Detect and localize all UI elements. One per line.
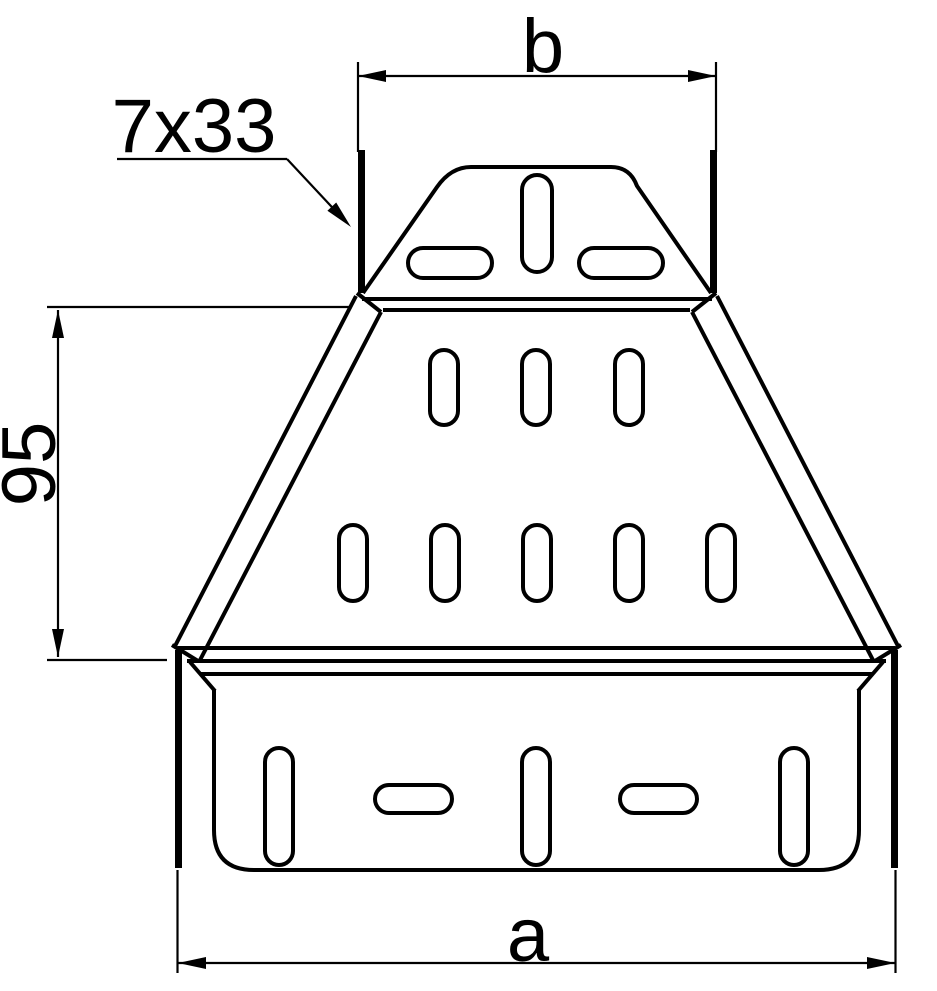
taper-upper-slot-3 — [615, 350, 643, 425]
reducer-drawing: b 95 7x33 — [0, 0, 937, 991]
dimension-a-arrow-left-icon — [178, 957, 206, 969]
taper-lower-slot-5 — [707, 525, 735, 601]
bottom-panel-vertical-slot-right — [780, 748, 808, 865]
taper-right-wall-inner — [692, 312, 874, 662]
dimension-b-arrow-right-icon — [688, 70, 716, 82]
taper-lower-slot-1 — [339, 525, 367, 601]
dimension-95: 95 — [0, 307, 352, 660]
dimension-95-arrow-down-icon — [52, 629, 64, 657]
taper-right-wall-outer — [717, 296, 899, 648]
top-flange-horizontal-slot-left — [408, 248, 492, 278]
dimension-95-label: 95 — [0, 422, 72, 507]
technical-drawing-canvas: b 95 7x33 — [0, 0, 937, 991]
callout-7x33-label: 7x33 — [112, 84, 277, 169]
taper-lower-slot-3 — [523, 525, 551, 601]
top-tray-seam-cap-left — [357, 293, 381, 312]
dimension-b-arrow-left-icon — [358, 70, 386, 82]
bottom-panel-vertical-slot-center — [522, 748, 550, 865]
taper-lower-slot-4 — [615, 525, 643, 601]
top-flange-vertical-slot — [522, 175, 552, 272]
top-flange-horizontal-slot-right — [579, 248, 663, 278]
top-tray-seam-cap-right — [692, 293, 716, 312]
bottom-tray-section — [178, 648, 895, 870]
dimension-95-arrow-up-icon — [52, 310, 64, 338]
bottom-panel-vertical-slot-left — [265, 748, 293, 865]
taper-left-wall-outer — [174, 296, 356, 648]
dimension-b: b — [358, 4, 716, 152]
bottom-panel-horizontal-slot-left — [375, 785, 452, 813]
bottom-panel-chamfer-left — [190, 662, 215, 691]
callout-7x33: 7x33 — [112, 84, 351, 227]
dimension-a: a — [178, 870, 896, 978]
taper-left-wall-inner — [199, 312, 381, 662]
taper-section — [172, 296, 901, 662]
taper-lower-slot-2 — [431, 525, 459, 601]
taper-upper-slot-1 — [430, 350, 458, 425]
dimension-a-label: a — [507, 893, 550, 978]
bottom-panel-horizontal-slot-right — [620, 785, 697, 813]
bottom-panel-chamfer-right — [858, 662, 883, 691]
dimension-b-label: b — [522, 4, 564, 89]
taper-upper-slot-2 — [522, 350, 550, 425]
top-tray-section — [357, 150, 716, 312]
dimension-a-arrow-right-icon — [867, 957, 895, 969]
